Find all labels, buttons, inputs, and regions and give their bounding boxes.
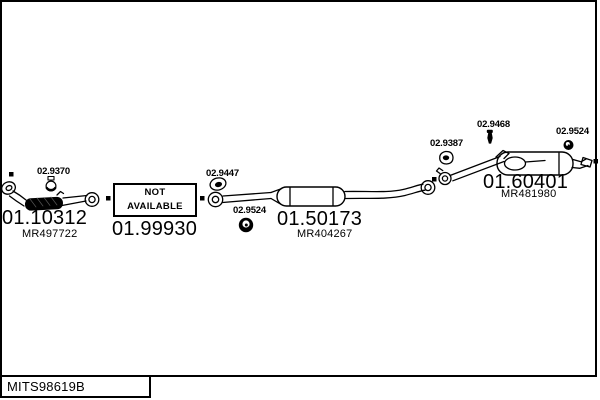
part-label-gasket-center: 02.9447 — [206, 168, 239, 179]
not-available-box: NOT AVAILABLE — [113, 183, 197, 217]
part-number-unavailable: 01.99930 — [112, 218, 197, 241]
clamp-icon — [46, 177, 56, 191]
oem-ref-rear-silencer: MR481980 — [501, 188, 556, 200]
drawing-code-box: MITS98619B — [0, 375, 151, 398]
rubber-mount-icon — [564, 140, 574, 150]
gasket-icon — [440, 151, 453, 164]
bolt-icon — [487, 130, 493, 144]
center-silencer-drawing — [223, 181, 435, 206]
rubber-mount-icon — [239, 218, 253, 232]
not-available-line2: AVAILABLE — [127, 200, 183, 214]
part-label-rubber-mount-center: 02.9524 — [233, 205, 266, 216]
exhaust-parts-diagram: 02.9370 02.9447 02.9524 02.9387 02.9468 … — [0, 0, 600, 400]
drawing-code: MITS98619B — [7, 379, 85, 394]
part-label-gasket-rear: 02.9387 — [430, 138, 463, 149]
part-number-front-pipe: 01.10312 — [2, 207, 87, 230]
part-label-rubber-mount-rear: 02.9524 — [556, 126, 589, 137]
oem-ref-center-silencer: MR404267 — [297, 228, 352, 240]
part-label-bolt-rear: 02.9468 — [477, 119, 510, 130]
not-available-line1: NOT — [145, 186, 166, 200]
oem-ref-front-pipe: MR497722 — [22, 228, 77, 240]
part-label-clamp-front: 02.9370 — [37, 166, 70, 177]
center-flange-drawing — [208, 192, 222, 206]
exhaust-system-drawing — [0, 0, 600, 400]
